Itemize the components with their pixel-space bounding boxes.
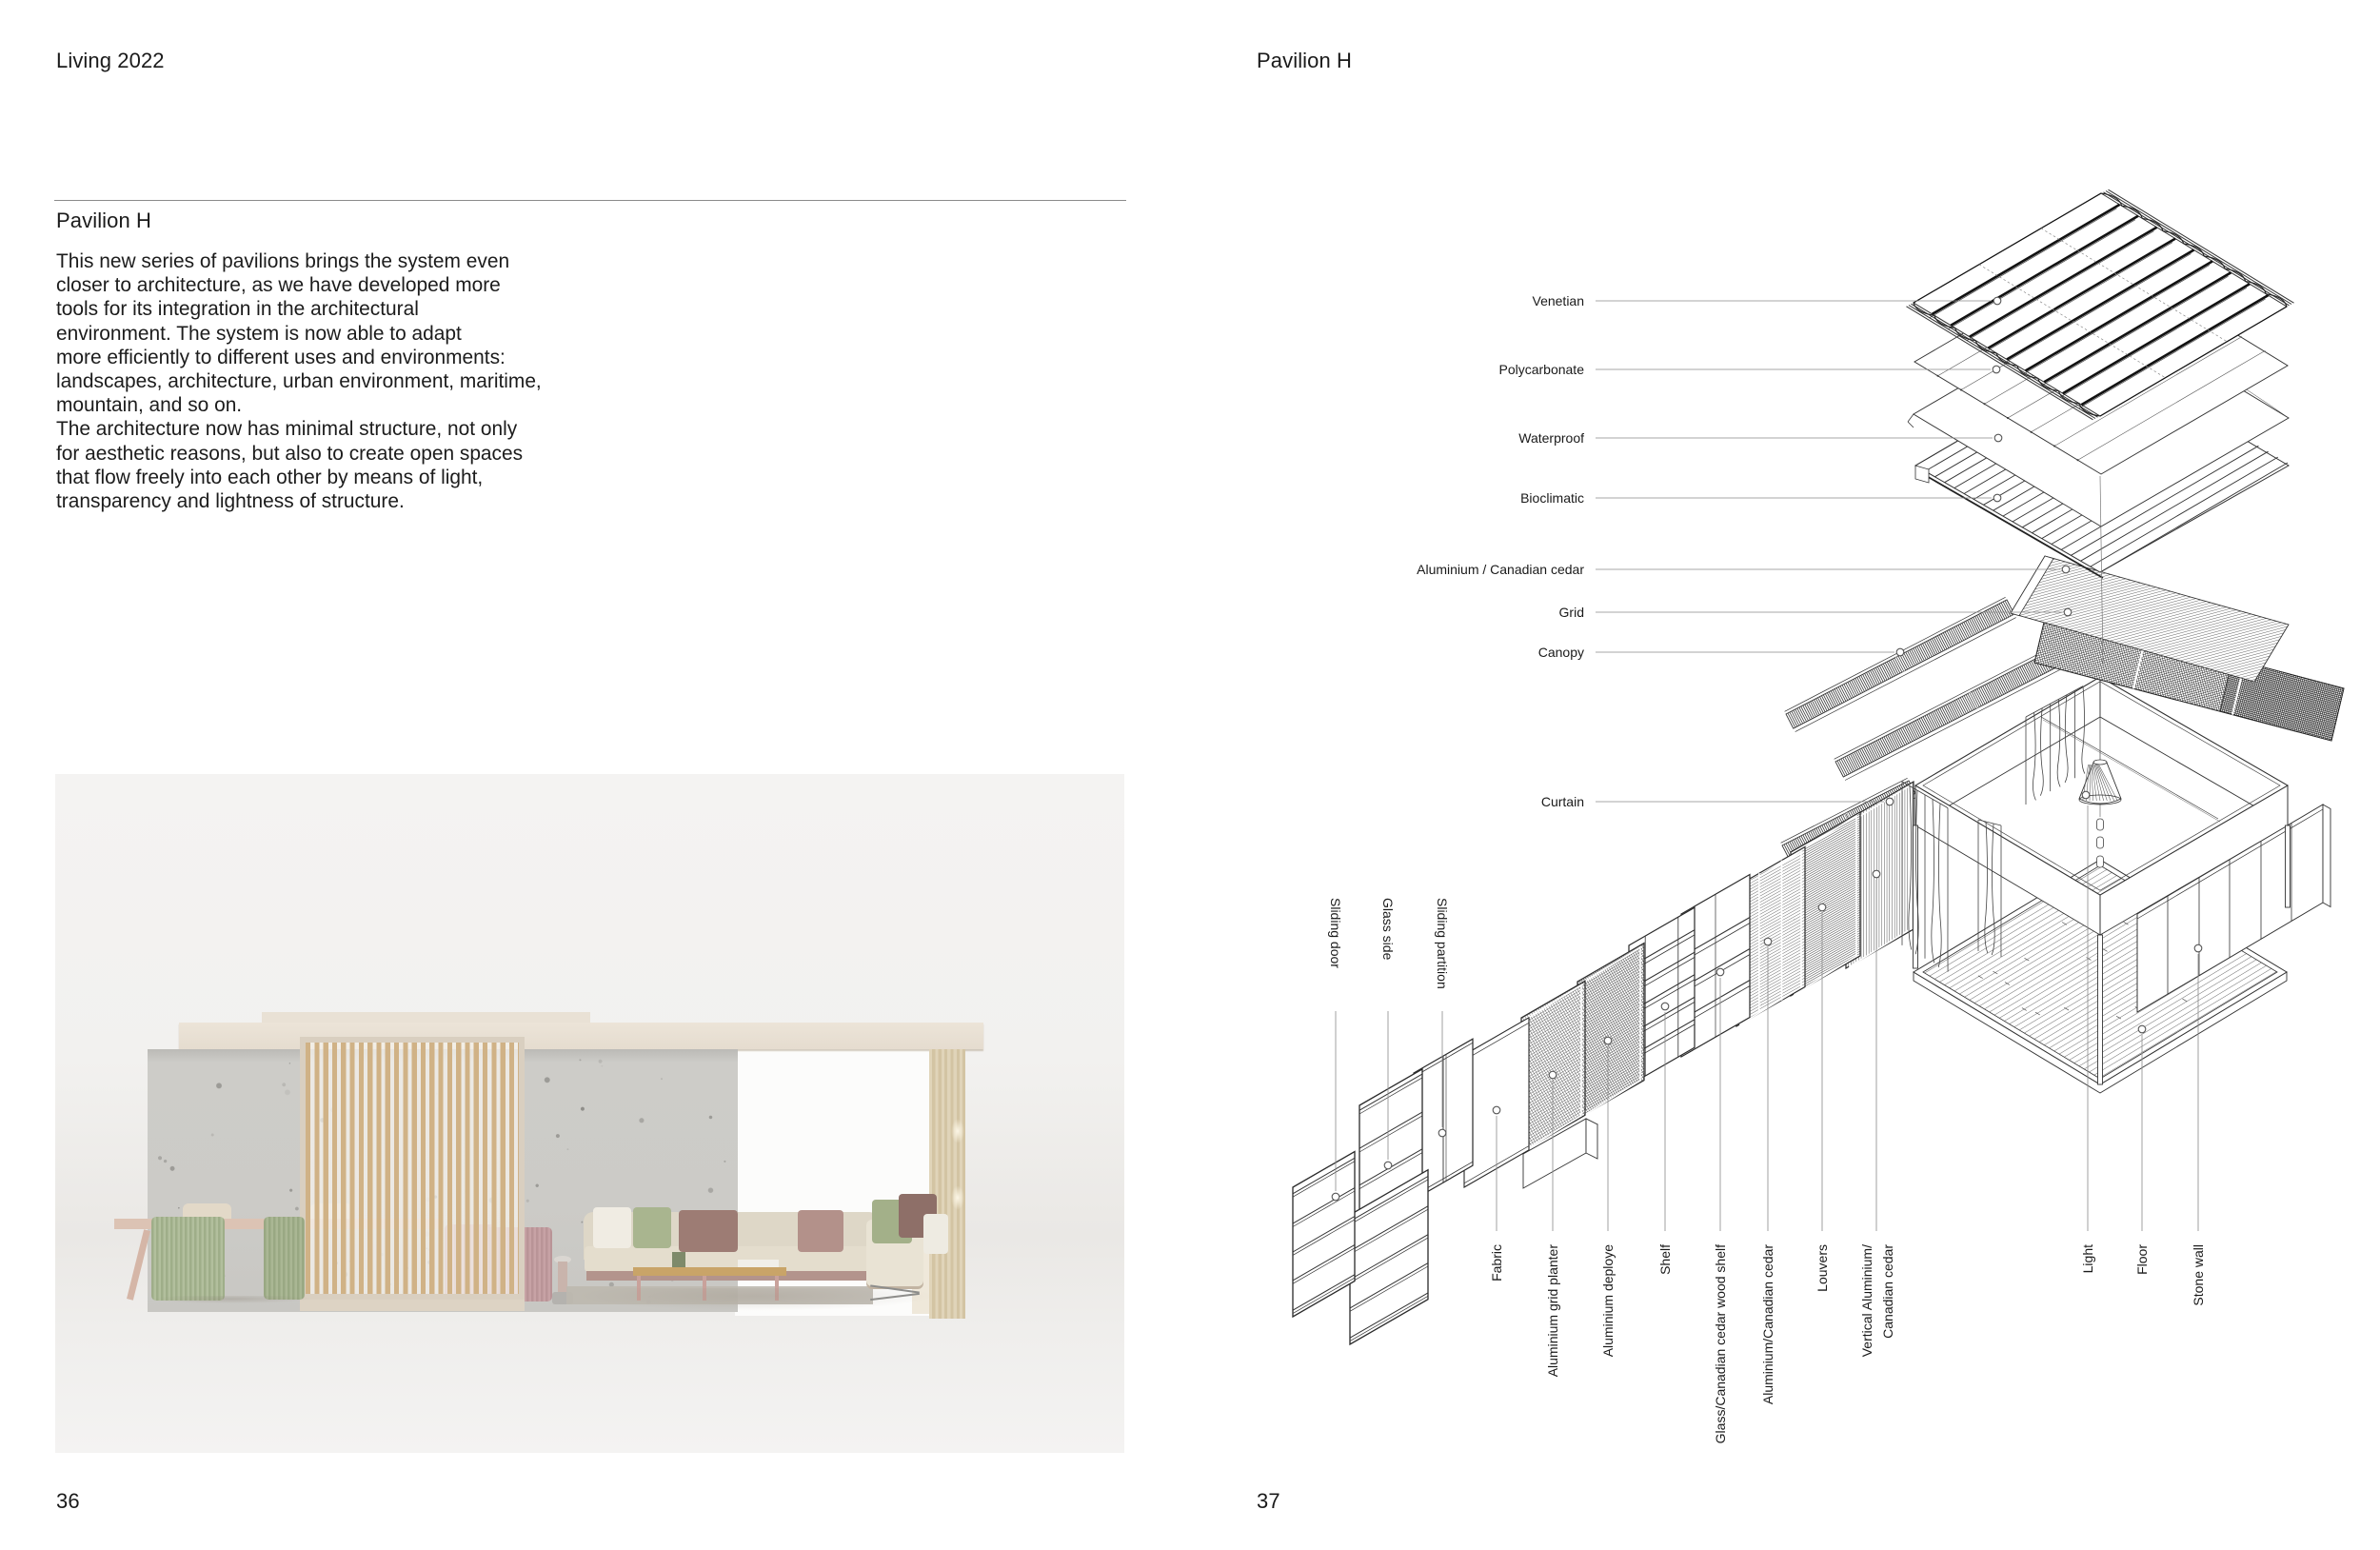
svg-text:Aluminium / Canadian cedar: Aluminium / Canadian cedar (1417, 562, 1584, 577)
svg-text:Stone wall: Stone wall (2191, 1244, 2206, 1306)
svg-text:Glass/Canadian cedar wood shel: Glass/Canadian cedar wood shelf (1713, 1244, 1728, 1443)
svg-text:Waterproof: Waterproof (1518, 430, 1584, 446)
svg-text:Grid: Grid (1559, 605, 1584, 620)
svg-text:Bioclimatic: Bioclimatic (1520, 490, 1584, 506)
svg-text:Sliding partition: Sliding partition (1435, 898, 1450, 989)
svg-text:Canopy: Canopy (1538, 645, 1584, 660)
svg-text:Light: Light (2080, 1244, 2095, 1273)
svg-text:Aluminium/Canadian cedar: Aluminium/Canadian cedar (1760, 1244, 1775, 1404)
svg-text:Curtain: Curtain (1541, 794, 1584, 809)
svg-text:Canadian cedar: Canadian cedar (1880, 1244, 1895, 1339)
svg-text:Louvers: Louvers (1815, 1244, 1830, 1292)
svg-text:Vertical Aluminium/: Vertical Aluminium/ (1859, 1244, 1874, 1357)
svg-text:Aluminium deploye: Aluminium deploye (1600, 1244, 1616, 1357)
svg-text:Sliding door: Sliding door (1328, 898, 1343, 968)
svg-text:Fabric: Fabric (1489, 1244, 1504, 1282)
svg-text:Polycarbonate: Polycarbonate (1498, 362, 1584, 377)
svg-text:Floor: Floor (2134, 1244, 2150, 1275)
svg-text:Aluminium grid planter: Aluminium grid planter (1545, 1244, 1560, 1378)
svg-text:Glass side: Glass side (1380, 898, 1396, 961)
svg-text:Shelf: Shelf (1657, 1244, 1673, 1275)
svg-text:Venetian: Venetian (1533, 293, 1585, 308)
